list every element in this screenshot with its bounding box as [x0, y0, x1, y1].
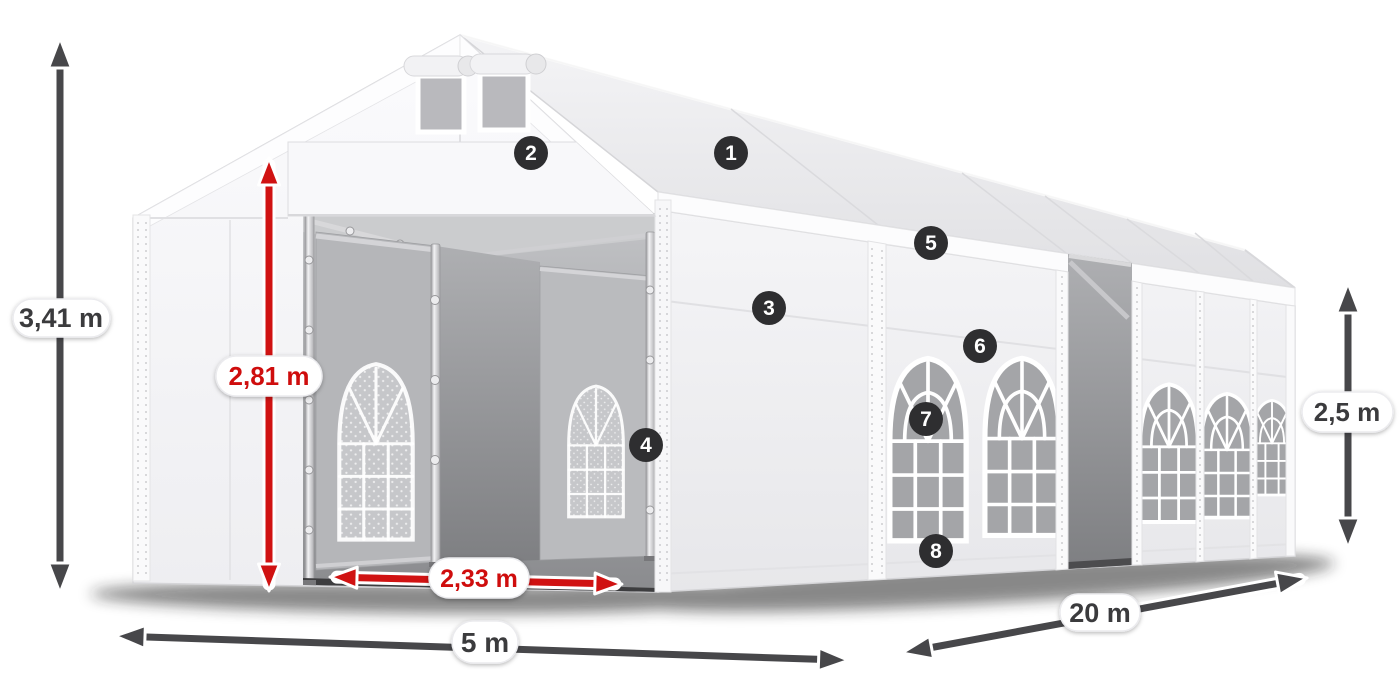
inner-door-right: [540, 266, 652, 560]
svg-text:3: 3: [763, 297, 775, 320]
wall-height-value: 2,5 m: [1314, 397, 1381, 427]
entrance-width-label: 2,33 m: [429, 558, 529, 598]
feature-badge-2: 2: [514, 136, 548, 170]
feature-badge-1: 1: [714, 136, 748, 170]
inner-door-left: [316, 232, 436, 570]
svg-text:5: 5: [925, 232, 937, 255]
feature-badge-7: 7: [909, 402, 943, 436]
side-window-1: [890, 358, 966, 540]
feature-badge-5: 5: [914, 226, 948, 260]
feature-badge-8: 8: [919, 534, 953, 568]
entrance-height-value: 2,81 m: [229, 361, 310, 391]
side-window-2: [985, 358, 1059, 535]
svg-text:1: 1: [725, 142, 737, 165]
svg-text:2: 2: [525, 142, 537, 165]
entrance-width-value: 2,33 m: [440, 565, 518, 593]
side-length-value: 20 m: [1069, 598, 1131, 628]
front-width-label: 5 m: [452, 621, 518, 663]
tent-product-diagram: 3,41 m 2,81 m 2,33 m 5 m 20 m 2,5 m 1: [0, 0, 1400, 700]
svg-text:8: 8: [930, 540, 942, 563]
feature-badge-3: 3: [752, 291, 786, 325]
tent-illustration: [133, 35, 1295, 592]
entrance-opening: [300, 213, 658, 592]
front-right-corner-pillar: [655, 200, 671, 592]
entrance-lintel: [288, 142, 662, 216]
total-height-value: 3,41 m: [19, 303, 103, 333]
side-open-section: [1068, 254, 1132, 569]
entrance-pole-middle: [431, 244, 440, 566]
side-window-4: [1201, 394, 1253, 518]
svg-text:4: 4: [640, 434, 652, 457]
front-width-value: 5 m: [461, 627, 509, 658]
feature-badge-4: 4: [629, 428, 663, 462]
tent-diagram-canvas: 3,41 m 2,81 m 2,33 m 5 m 20 m 2,5 m 1: [0, 0, 1400, 700]
wall-height-label: 2,5 m: [1302, 392, 1393, 432]
entrance-height-label: 2,81 m: [216, 356, 322, 396]
side-window-3: [1140, 384, 1198, 522]
svg-text:6: 6: [974, 335, 986, 358]
front-left-corner-pillar: [133, 215, 150, 581]
feature-badge-6: 6: [963, 329, 997, 363]
total-height-label: 3,41 m: [13, 299, 110, 337]
side-length-label: 20 m: [1060, 594, 1140, 631]
svg-text:7: 7: [920, 408, 932, 431]
interior-passage: [436, 246, 540, 564]
